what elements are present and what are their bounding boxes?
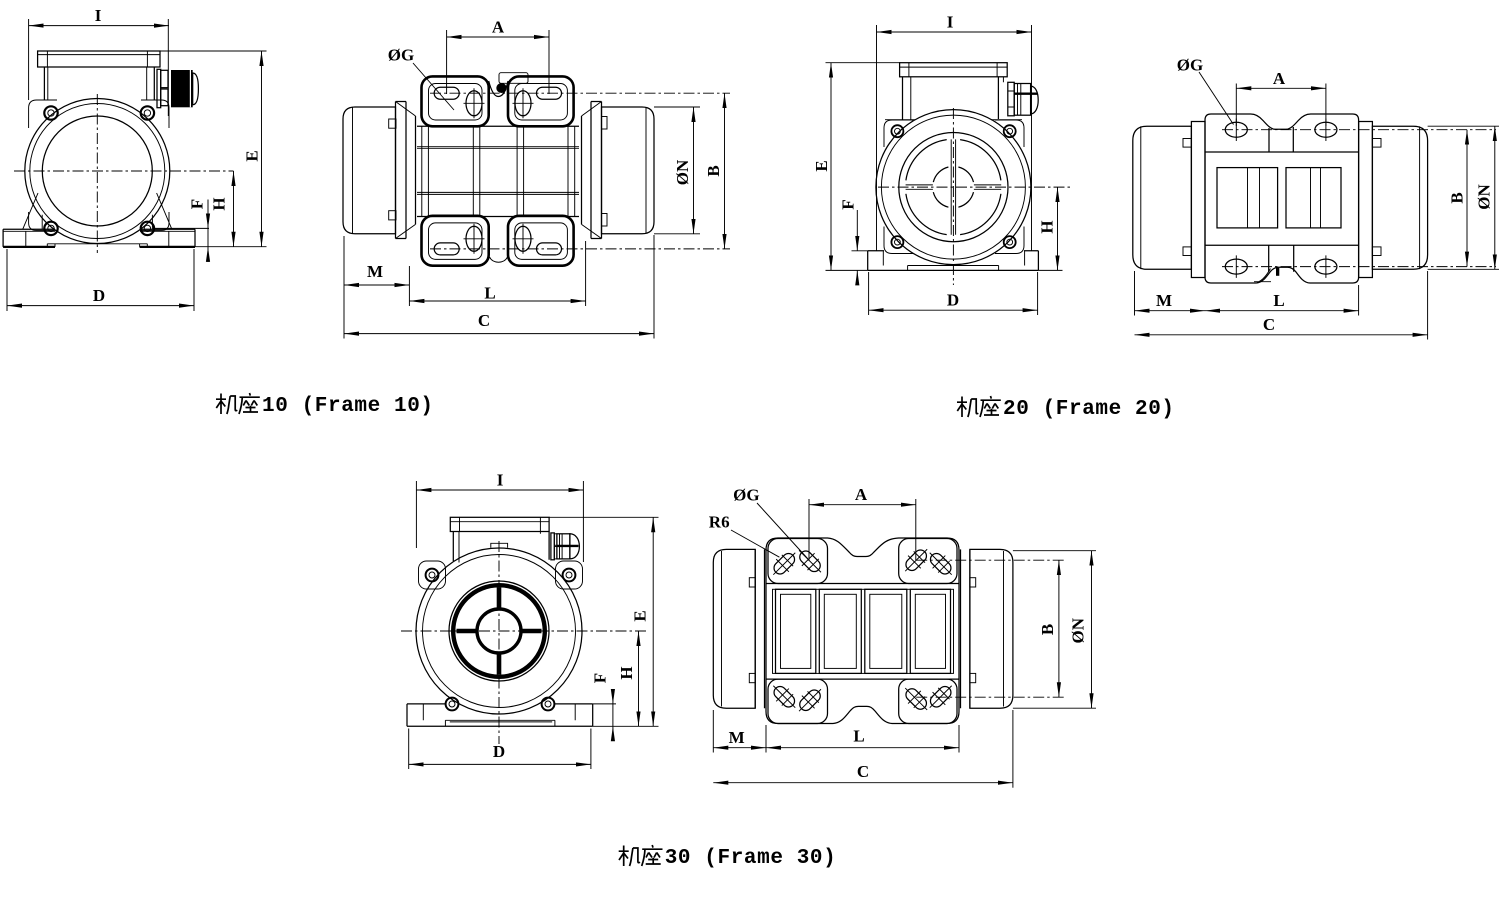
svg-text:B: B xyxy=(1448,192,1467,203)
svg-text:ØG: ØG xyxy=(733,486,759,505)
svg-text:D: D xyxy=(93,286,105,305)
svg-text:D: D xyxy=(493,742,505,761)
svg-text:ØN: ØN xyxy=(1475,184,1494,210)
svg-text:A: A xyxy=(1273,69,1286,88)
svg-text:H: H xyxy=(1038,220,1057,233)
svg-text:L: L xyxy=(484,284,495,303)
svg-text:20 (Frame 20): 20 (Frame 20) xyxy=(1003,398,1175,421)
svg-text:H: H xyxy=(210,197,229,210)
svg-text:D: D xyxy=(947,291,959,310)
svg-text:I: I xyxy=(497,471,504,490)
svg-text:M: M xyxy=(367,262,383,281)
svg-text:ØG: ØG xyxy=(388,46,414,65)
svg-text:C: C xyxy=(857,762,869,781)
svg-text:I: I xyxy=(95,6,102,25)
svg-text:E: E xyxy=(631,610,650,621)
svg-text:L: L xyxy=(1273,291,1284,310)
svg-text:C: C xyxy=(1263,315,1275,334)
svg-text:I: I xyxy=(947,13,954,32)
svg-text:10 (Frame 10): 10 (Frame 10) xyxy=(262,395,434,418)
svg-text:F: F xyxy=(839,199,858,209)
svg-text:F: F xyxy=(591,673,610,683)
svg-text:B: B xyxy=(1038,624,1057,635)
svg-text:ØN: ØN xyxy=(673,159,692,185)
svg-text:R6: R6 xyxy=(709,513,730,532)
svg-text:C: C xyxy=(478,311,490,330)
svg-text:M: M xyxy=(1156,291,1172,310)
svg-text:30 (Frame 30): 30 (Frame 30) xyxy=(665,847,837,870)
svg-text:E: E xyxy=(243,150,262,161)
svg-text:F: F xyxy=(188,199,207,209)
svg-text:ØG: ØG xyxy=(1177,56,1203,75)
svg-text:B: B xyxy=(704,165,723,176)
svg-text:A: A xyxy=(855,485,868,504)
svg-text:E: E xyxy=(812,160,831,171)
svg-text:M: M xyxy=(729,728,745,747)
svg-text:A: A xyxy=(492,18,505,37)
svg-text:ØN: ØN xyxy=(1069,617,1088,643)
svg-text:H: H xyxy=(617,666,636,679)
svg-text:L: L xyxy=(853,727,864,746)
